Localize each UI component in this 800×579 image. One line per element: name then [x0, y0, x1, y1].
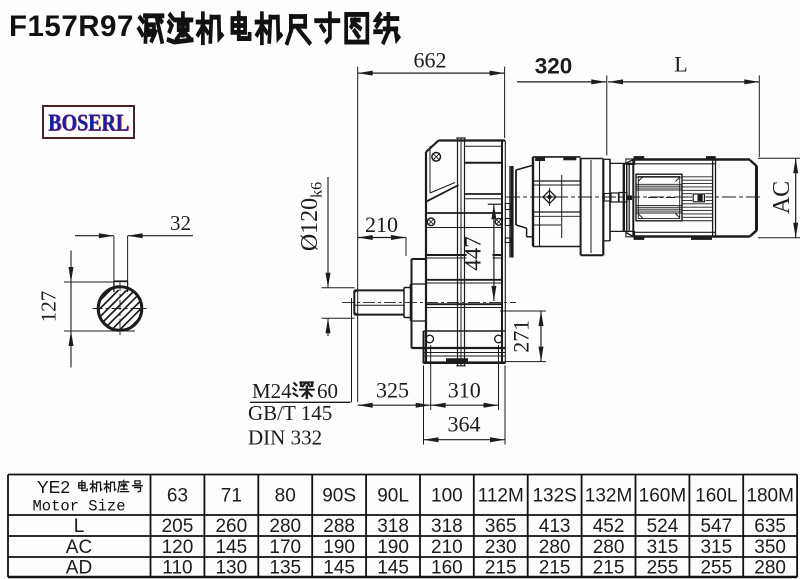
svg-text:215: 215 — [539, 558, 571, 579]
svg-text:Ø120k6: Ø120k6 — [297, 182, 326, 251]
svg-text:325: 325 — [376, 378, 409, 403]
svg-text:127: 127 — [37, 291, 61, 323]
svg-text:315: 315 — [700, 537, 732, 558]
svg-text:135: 135 — [269, 558, 301, 579]
svg-text:320: 320 — [535, 54, 573, 79]
svg-text:160L: 160L — [695, 486, 737, 507]
svg-text:AC: AC — [66, 537, 92, 558]
svg-text:271: 271 — [509, 320, 534, 353]
svg-text:635: 635 — [754, 516, 786, 537]
svg-text:215: 215 — [485, 558, 517, 579]
svg-text:132M: 132M — [585, 486, 633, 507]
svg-text:60: 60 — [317, 379, 338, 403]
svg-text:190: 190 — [323, 537, 355, 558]
svg-text:413: 413 — [539, 516, 571, 537]
svg-text:662: 662 — [414, 48, 447, 73]
svg-text:132S: 132S — [532, 486, 576, 507]
svg-text:280: 280 — [539, 537, 571, 558]
svg-text:145: 145 — [377, 558, 409, 579]
svg-text:90L: 90L — [377, 486, 409, 507]
svg-text:350: 350 — [754, 537, 786, 558]
svg-text:230: 230 — [485, 537, 517, 558]
svg-text:255: 255 — [647, 558, 679, 579]
svg-text:AD: AD — [66, 558, 92, 579]
svg-text:DIN 332: DIN 332 — [248, 426, 322, 450]
svg-text:255: 255 — [700, 558, 732, 579]
svg-text:32: 32 — [170, 211, 191, 235]
svg-text:YE2: YE2 — [37, 477, 70, 497]
svg-text:547: 547 — [700, 516, 732, 537]
svg-text:364: 364 — [448, 412, 481, 437]
svg-text:145: 145 — [323, 558, 355, 579]
svg-text:160: 160 — [431, 558, 463, 579]
svg-text:145: 145 — [215, 537, 247, 558]
svg-text:524: 524 — [647, 516, 679, 537]
svg-text:365: 365 — [485, 516, 517, 537]
svg-text:L: L — [674, 52, 687, 77]
svg-text:205: 205 — [162, 516, 194, 537]
svg-text:280: 280 — [754, 558, 786, 579]
svg-text:90S: 90S — [322, 486, 356, 507]
svg-text:120: 120 — [162, 537, 194, 558]
svg-text:190: 190 — [377, 537, 409, 558]
svg-text:GB/T 145: GB/T 145 — [248, 401, 332, 425]
svg-text:210: 210 — [365, 212, 398, 237]
svg-text:100: 100 — [431, 486, 463, 507]
svg-text:447: 447 — [461, 236, 486, 271]
svg-text:160M: 160M — [639, 486, 687, 507]
svg-text:180M: 180M — [746, 486, 794, 507]
svg-text:71: 71 — [221, 486, 242, 507]
svg-text:310: 310 — [448, 378, 481, 403]
svg-text:280: 280 — [593, 537, 625, 558]
svg-text:80: 80 — [275, 486, 296, 507]
svg-text:452: 452 — [593, 516, 625, 537]
svg-text:318: 318 — [377, 516, 409, 537]
svg-text:210: 210 — [431, 537, 463, 558]
svg-text:130: 130 — [215, 558, 247, 579]
svg-text:288: 288 — [323, 516, 355, 537]
svg-text:280: 280 — [269, 516, 301, 537]
svg-text:AC: AC — [769, 181, 795, 214]
svg-text:110: 110 — [162, 558, 192, 579]
svg-text:63: 63 — [167, 486, 188, 507]
svg-text:M24: M24 — [252, 379, 292, 403]
svg-text:170: 170 — [269, 537, 301, 558]
svg-text:L: L — [74, 516, 85, 537]
svg-text:260: 260 — [215, 516, 247, 537]
svg-text:215: 215 — [593, 558, 625, 579]
svg-text:112M: 112M — [478, 486, 524, 507]
svg-text:318: 318 — [431, 516, 463, 537]
svg-text:315: 315 — [647, 537, 679, 558]
svg-text:Motor Size: Motor Size — [32, 498, 125, 516]
